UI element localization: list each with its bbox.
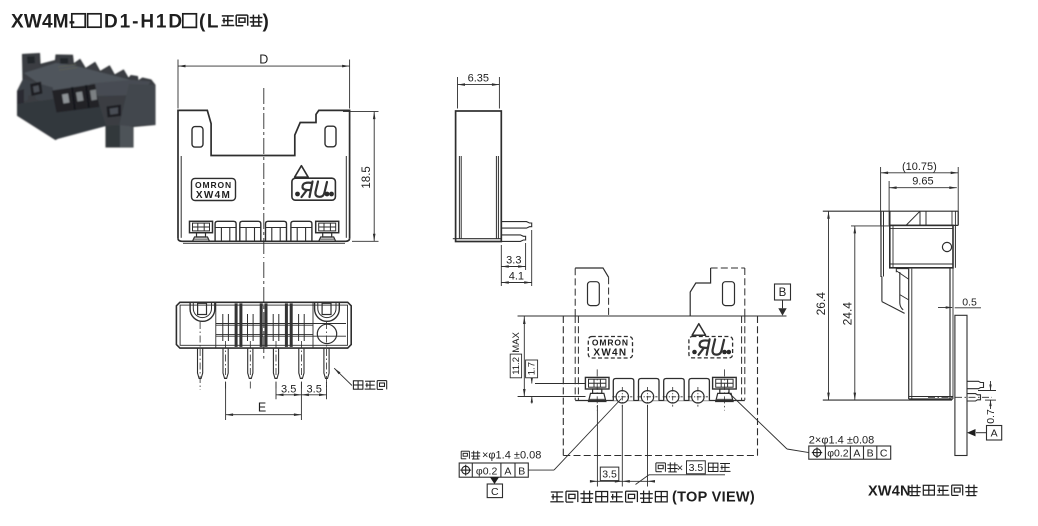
svg-text:11.2: 11.2: [511, 357, 522, 375]
svg-text:φ0.2: φ0.2: [827, 448, 849, 460]
svg-text:OMRON: OMRON: [592, 338, 629, 348]
svg-text:A: A: [853, 448, 860, 460]
svg-text:24.4: 24.4: [840, 302, 854, 326]
svg-text:OMRON: OMRON: [195, 180, 232, 190]
svg-text:18.5: 18.5: [361, 166, 373, 188]
svg-text:MAX: MAX: [511, 332, 522, 353]
svg-text:E: E: [258, 401, 266, 415]
svg-text:(L: (L: [199, 12, 220, 33]
svg-text:6.35: 6.35: [468, 73, 489, 85]
svg-text:26.4: 26.4: [814, 292, 828, 316]
svg-text:XW4N: XW4N: [593, 348, 627, 359]
svg-text:4.1: 4.1: [509, 270, 524, 282]
svg-text:(10.75): (10.75): [902, 161, 937, 173]
svg-text:2×φ1.4 ±0.08: 2×φ1.4 ±0.08: [809, 434, 874, 446]
svg-text:0.5: 0.5: [962, 296, 977, 308]
svg-text:D: D: [259, 53, 268, 67]
svg-text:A: A: [991, 428, 998, 440]
svg-text:×: ×: [677, 463, 683, 475]
svg-text:B: B: [867, 448, 874, 460]
svg-text:3.5: 3.5: [307, 384, 322, 396]
svg-text:A: A: [504, 465, 511, 477]
svg-text:3.3: 3.3: [506, 255, 521, 267]
svg-text:0.7: 0.7: [985, 409, 997, 424]
svg-text:B: B: [518, 465, 525, 477]
svg-text:XW4M: XW4M: [196, 190, 231, 201]
svg-text:): ): [263, 12, 269, 33]
svg-text:B: B: [779, 287, 787, 299]
svg-text:C: C: [880, 448, 888, 460]
svg-text:XW4M-: XW4M-: [11, 12, 75, 33]
svg-text:1.7: 1.7: [527, 362, 538, 375]
svg-text:3.5: 3.5: [281, 384, 296, 396]
svg-text:3.5: 3.5: [689, 462, 704, 474]
svg-text:C: C: [491, 486, 499, 498]
svg-text:×φ1.4 ±0.08: ×φ1.4 ±0.08: [482, 450, 541, 462]
svg-text:(TOP VIEW): (TOP VIEW): [672, 490, 755, 506]
svg-text:D1-H1D: D1-H1D: [104, 12, 184, 33]
svg-text:XW4N: XW4N: [868, 484, 911, 500]
svg-text:9.65: 9.65: [912, 176, 933, 188]
svg-text:φ0.2: φ0.2: [476, 465, 498, 477]
svg-text:3.5: 3.5: [602, 469, 617, 481]
